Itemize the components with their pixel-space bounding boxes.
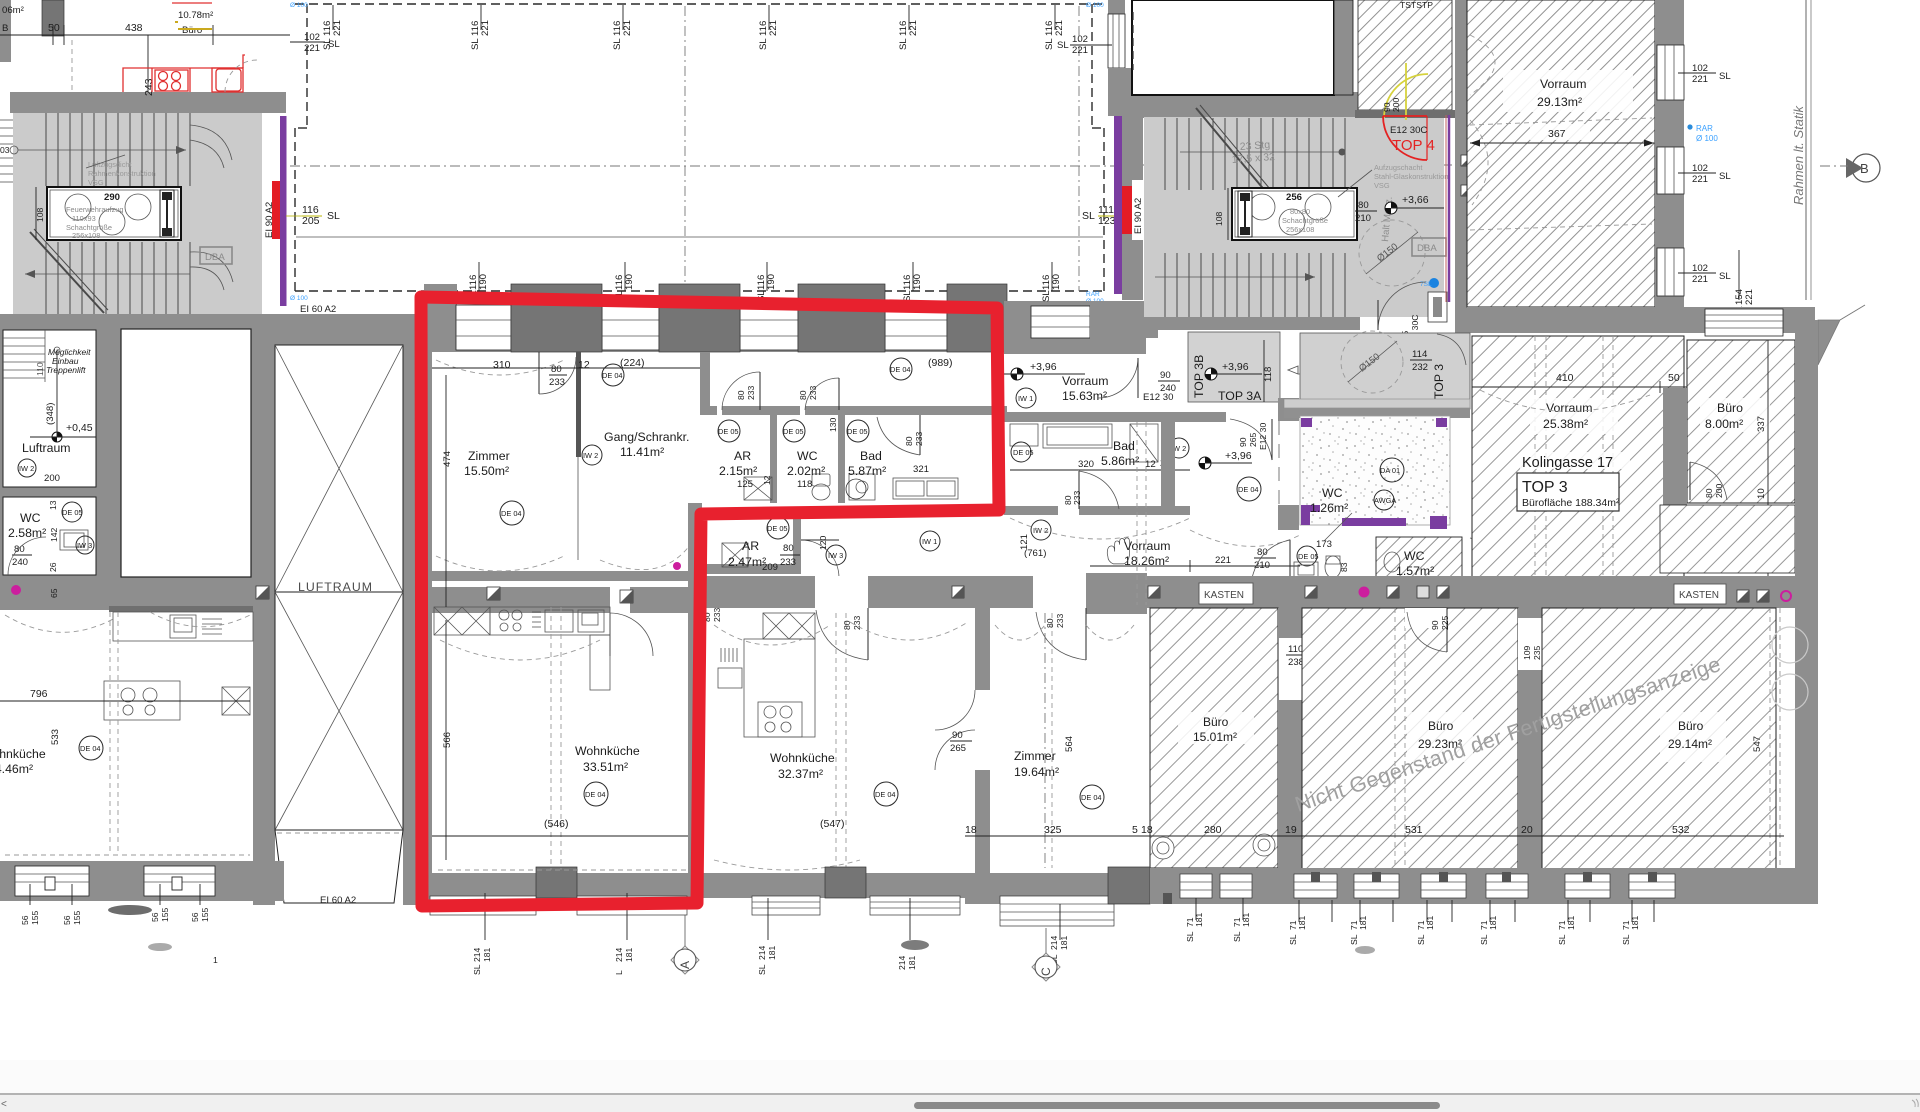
svg-text:102: 102 [1692,63,1708,74]
svg-text:214: 214 [614,947,624,962]
svg-text:SL: SL [757,964,767,975]
svg-text:321: 321 [913,464,929,475]
svg-text:KASTEN: KASTEN [1204,590,1244,601]
svg-text:+3,96: +3,96 [1030,361,1057,373]
svg-text:221: 221 [480,20,491,36]
svg-text:90: 90 [1160,370,1171,381]
svg-text:173: 173 [1316,539,1332,550]
svg-text:SL: SL [322,38,333,50]
svg-text:IW 2: IW 2 [19,464,34,473]
svg-text:110: 110 [35,362,45,376]
svg-text:367: 367 [1548,128,1566,140]
svg-text:233: 233 [712,607,722,622]
svg-text:+0,45: +0,45 [66,422,93,434]
svg-text:221: 221 [1692,174,1708,185]
svg-text:RAR: RAR [1086,291,1100,298]
svg-text:Aufzugschacht: Aufzugschacht [1374,163,1422,172]
svg-text:DE 04: DE 04 [80,744,101,753]
svg-text:221: 221 [1744,289,1755,305]
svg-text:210: 210 [1355,213,1371,224]
svg-text:SL: SL [758,38,769,50]
svg-text:TOP 3A: TOP 3A [1218,389,1262,403]
svg-text:12: 12 [578,359,590,371]
svg-text:33.51m²: 33.51m² [583,760,628,774]
svg-text:155: 155 [30,910,40,925]
svg-text:200: 200 [1714,483,1724,498]
svg-text:SL: SL [1057,40,1069,51]
svg-text:80: 80 [842,620,852,630]
svg-text:(224): (224) [620,357,645,369]
svg-text:Kolingasse 17: Kolingasse 17 [1522,455,1613,471]
svg-text:181: 181 [624,947,634,962]
svg-text:209: 209 [762,562,778,573]
svg-text:+3,96: +3,96 [1222,361,1249,373]
svg-text:Bad: Bad [860,449,882,463]
svg-text:Ø 100: Ø 100 [290,2,308,9]
svg-text:80: 80 [904,436,914,446]
svg-text:181: 181 [767,945,777,960]
svg-text:566: 566 [442,732,453,748]
svg-text:181: 181 [1488,915,1498,930]
svg-text:108: 108 [35,207,45,222]
svg-text:233: 233 [549,377,565,388]
svg-text:5.87m²: 5.87m² [848,464,886,478]
svg-text:11.41m²: 11.41m² [620,445,664,459]
svg-text:102: 102 [1072,34,1088,45]
svg-text:531: 531 [1405,824,1423,836]
svg-text:18: 18 [1141,824,1153,836]
svg-text:325: 325 [1044,824,1062,836]
svg-text:(547): (547) [820,818,845,830]
svg-text:221: 221 [908,20,919,36]
svg-text:Wohnküche: Wohnküche [0,747,46,761]
svg-text:Ø 100: Ø 100 [290,295,308,302]
svg-text:(989): (989) [928,357,953,369]
svg-text:TOP 3B: TOP 3B [1192,355,1206,398]
svg-text:80: 80 [798,390,808,400]
svg-text:Schachtgröße: Schachtgröße [1282,216,1328,225]
svg-text:DE 04: DE 04 [890,365,911,374]
svg-text:E12 30: E12 30 [1143,392,1173,403]
svg-text:IW 1: IW 1 [922,537,937,546]
svg-text:8.00m²: 8.00m² [1705,417,1743,431]
svg-text:280: 280 [1204,824,1222,836]
svg-text:83: 83 [1339,562,1349,572]
svg-text:118: 118 [797,479,812,490]
svg-text:SL: SL [1041,290,1052,302]
svg-text:221: 221 [304,43,320,54]
svg-text:233: 233 [1055,613,1065,628]
svg-text:190: 190 [766,274,777,290]
svg-text:DE 05: DE 05 [1298,552,1319,561]
svg-text:320: 320 [1078,459,1094,470]
svg-text:29.14m²: 29.14m² [1668,737,1712,751]
svg-text:190: 190 [912,274,923,290]
svg-text:SL: SL [612,38,623,50]
svg-text:233: 233 [914,431,924,446]
svg-text:108: 108 [1214,211,1224,226]
svg-text:190: 190 [478,274,489,290]
svg-text:13: 13 [48,500,58,510]
svg-text:80: 80 [551,364,562,375]
svg-text:Bad: Bad [1113,439,1135,453]
svg-text:(761): (761) [1024,548,1046,559]
svg-text:SL: SL [1082,210,1095,222]
svg-text:80: 80 [1704,488,1714,498]
svg-text:474: 474 [442,450,453,467]
svg-text:796: 796 [30,688,48,700]
svg-text:205: 205 [302,215,320,227]
svg-text:256x108: 256x108 [72,231,100,240]
svg-text:E12 30C: E12 30C [1390,125,1427,136]
svg-text:Stahl-Glaskonstruktion: Stahl-Glaskonstruktion [1374,172,1448,181]
svg-text:181: 181 [1630,915,1640,930]
svg-text:SL: SL [1719,271,1731,282]
svg-text:DE 04: DE 04 [1081,793,1102,802]
svg-text:80: 80 [783,543,794,554]
svg-text:SL: SL [1288,934,1298,945]
svg-text:225: 225 [1440,615,1450,630]
svg-text:KASTEN: KASTEN [1679,590,1719,601]
svg-text:265: 265 [950,743,966,754]
svg-text:DE 04: DE 04 [1238,485,1259,494]
svg-text:118: 118 [1263,367,1274,382]
svg-text:90: 90 [1430,620,1440,630]
svg-text:290: 290 [104,192,120,203]
svg-text:12: 12 [762,475,772,485]
svg-text:Rahmenkonstruktion: Rahmenkonstruktion [88,169,156,178]
svg-text:155: 155 [200,907,210,922]
svg-text:14.46m²: 14.46m² [0,762,33,776]
svg-text:A: A [678,961,692,969]
svg-text:109: 109 [1522,645,1532,660]
svg-text:DBA: DBA [1417,243,1437,254]
svg-text:221: 221 [1054,20,1065,36]
svg-text:80: 80 [1045,618,1055,628]
svg-text:SL: SL [1044,38,1055,50]
svg-text:114: 114 [1412,349,1428,360]
svg-text:142: 142 [49,527,59,542]
svg-text:110x93: 110x93 [72,214,96,223]
svg-text:IW 1: IW 1 [1018,394,1033,403]
svg-text:(546): (546) [544,818,569,830]
svg-text:256x108: 256x108 [1286,225,1314,234]
svg-text:155: 155 [72,910,82,925]
svg-text:DA 01: DA 01 [1380,466,1400,475]
svg-text:AR: AR [734,449,751,463]
svg-text:DE 05: DE 05 [847,427,868,436]
svg-text:DE 05: DE 05 [783,427,804,436]
svg-text:19: 19 [1285,824,1297,836]
svg-text:181: 181 [1194,912,1204,927]
svg-text:C: C [1039,967,1053,976]
svg-text:Vorraum: Vorraum [1124,539,1170,553]
svg-text:2.47m²: 2.47m² [728,555,766,569]
svg-text:DE 05: DE 05 [62,508,83,517]
svg-text:123: 123 [1098,215,1116,227]
svg-text:06m²: 06m² [2,5,25,16]
svg-text:DE 04: DE 04 [501,509,522,518]
svg-text:10: 10 [1756,488,1767,499]
svg-text:56: 56 [150,912,160,922]
svg-text:221: 221 [1692,74,1708,85]
svg-text:221: 221 [768,20,779,36]
svg-text:547: 547 [1752,736,1763,752]
svg-text:DE 04: DE 04 [585,790,606,799]
svg-text:Feuerwehraufzug: Feuerwehraufzug [66,205,124,214]
svg-text:Büro: Büro [1717,401,1743,415]
svg-text:2.15m²: 2.15m² [719,464,757,478]
svg-text:80: 80 [1358,200,1369,211]
svg-text:214: 214 [472,947,482,962]
svg-text:102: 102 [1692,263,1708,274]
svg-text:29.13m²: 29.13m² [1537,95,1582,109]
svg-text:190: 190 [624,274,635,290]
svg-text:Ø 100: Ø 100 [1696,134,1718,143]
svg-text:181: 181 [1425,915,1435,930]
svg-text:181: 181 [1358,915,1368,930]
svg-text:32.37m²: 32.37m² [778,767,823,781]
svg-text:5: 5 [1132,824,1138,836]
svg-text:DBA: DBA [205,252,225,263]
svg-text:SL: SL [1621,934,1631,945]
svg-text:221: 221 [1215,555,1231,566]
svg-text:56: 56 [20,915,30,925]
svg-text:SL: SL [1719,71,1731,82]
svg-text:337: 337 [1756,416,1767,432]
svg-text:Bürofläche 188.34m²: Bürofläche 188.34m² [1522,497,1620,509]
svg-text:SL: SL [1557,934,1567,945]
svg-text:125: 125 [737,479,753,490]
svg-text:Büro: Büro [182,25,202,36]
svg-text:214: 214 [1049,935,1059,950]
svg-text:200: 200 [44,473,60,484]
svg-text:240: 240 [12,557,28,568]
svg-text:221: 221 [1072,45,1088,56]
svg-text:564: 564 [1064,735,1075,752]
svg-text:80x80: 80x80 [1290,207,1310,216]
svg-text:233: 233 [746,385,756,400]
svg-text:2.58m²: 2.58m² [8,526,46,540]
svg-text:Vorraum: Vorraum [1062,374,1108,388]
svg-text:Wohnküche: Wohnküche [770,751,835,765]
svg-text:DE 04: DE 04 [602,371,623,380]
svg-text:Treppenlift: Treppenlift [46,365,86,375]
svg-text:1.26m²: 1.26m² [1310,501,1348,515]
svg-text:221: 221 [622,20,633,36]
svg-text:WC: WC [20,511,41,525]
svg-text:110: 110 [1288,644,1303,655]
svg-text:25.38m²: 25.38m² [1543,417,1588,431]
svg-text:20: 20 [1521,824,1533,836]
svg-text:214: 214 [897,955,907,970]
svg-text:Büro: Büro [1678,719,1704,733]
svg-text:IW 2: IW 2 [1033,526,1048,535]
svg-text:533: 533 [50,729,61,745]
svg-text:VSG: VSG [88,178,104,187]
svg-text:256: 256 [1286,192,1302,203]
svg-text:15.63m²: 15.63m² [1062,389,1107,403]
svg-text:SL: SL [1349,934,1359,945]
svg-text:(348): (348) [45,403,56,425]
svg-text:181: 181 [1566,915,1576,930]
svg-text:181: 181 [1241,912,1251,927]
svg-text:102: 102 [1692,163,1708,174]
svg-text:181: 181 [1297,915,1307,930]
svg-text:5.86m²: 5.86m² [1101,454,1139,468]
svg-text:SL: SL [1719,171,1731,182]
svg-text:181: 181 [907,955,917,970]
svg-text:Luftraum: Luftraum [22,441,71,455]
svg-text:L: L [614,970,624,975]
svg-text:SL: SL [898,38,909,50]
svg-text:TOP 3: TOP 3 [1432,364,1446,399]
svg-text:EI 60 A2: EI 60 A2 [300,304,336,315]
svg-text:Zimmer: Zimmer [468,449,510,463]
svg-text:DE 05: DE 05 [767,524,788,533]
svg-text:532: 532 [1672,824,1690,836]
svg-text:TOP 3: TOP 3 [1522,479,1568,496]
svg-text:IW 2: IW 2 [583,451,598,460]
svg-text:2.02m²: 2.02m² [787,464,825,478]
svg-text:232: 232 [1412,362,1428,373]
svg-text:SL: SL [1416,934,1426,945]
svg-text:AR: AR [742,539,759,553]
svg-text:15.01m²: 15.01m² [1193,730,1237,744]
svg-text:Ø 100: Ø 100 [1086,2,1104,9]
svg-text:265: 265 [1248,432,1258,447]
svg-text:SL: SL [472,964,482,975]
svg-text:90: 90 [1238,437,1248,447]
svg-text:Wohnküche: Wohnküche [575,744,640,758]
svg-text:IW 3: IW 3 [828,551,843,560]
svg-text:181: 181 [1059,935,1069,950]
svg-text:Büro: Büro [1428,719,1454,733]
svg-text:130: 130 [828,417,838,432]
svg-text:56: 56 [62,915,72,925]
svg-text:+3,66: +3,66 [1402,194,1429,206]
svg-text:90: 90 [952,730,963,741]
svg-text:WC: WC [1322,486,1343,500]
svg-text:233: 233 [1072,490,1082,505]
svg-text:LUFTRAUM: LUFTRAUM [298,580,373,594]
svg-text:E12 30: E12 30 [1258,423,1268,450]
svg-text:B: B [2,23,8,34]
svg-text:10.78m²: 10.78m² [178,10,214,21]
svg-text:SL: SL [470,38,481,50]
svg-text:181: 181 [482,947,492,962]
svg-text:214: 214 [757,945,767,960]
svg-text:80: 80 [14,544,25,555]
svg-text:Vorraum: Vorraum [1540,77,1586,91]
svg-text:235: 235 [1532,645,1542,660]
svg-text:50: 50 [48,22,60,34]
svg-text:Gang/Schrankr.: Gang/Schrankr. [604,430,689,444]
svg-text:SL: SL [1185,931,1195,942]
svg-text:200: 200 [1391,97,1401,112]
svg-text:26: 26 [48,562,58,572]
svg-text:Rahmen lt. Statik: Rahmen lt. Statik [1791,105,1806,205]
svg-text:TOP 4: TOP 4 [1392,137,1435,154]
svg-text:IW 3: IW 3 [77,541,92,550]
svg-text:102: 102 [304,32,320,43]
svg-text:233: 233 [780,557,796,568]
svg-text:DE 05: DE 05 [718,427,739,436]
svg-text:DE 05: DE 05 [1013,448,1034,457]
svg-text:310: 310 [493,359,511,371]
svg-text:VSG: VSG [1374,181,1390,190]
svg-text:1.57m²: 1.57m² [1396,564,1434,578]
svg-text:DE 04: DE 04 [875,790,896,799]
svg-text:410: 410 [1556,372,1574,384]
svg-text:155: 155 [160,907,170,922]
svg-text:190: 190 [1051,274,1062,290]
svg-text:Vorraum: Vorraum [1546,401,1592,415]
svg-text:80: 80 [736,390,746,400]
svg-text:1: 1 [213,955,218,965]
svg-text:WC: WC [797,449,818,463]
svg-text:+3,96: +3,96 [1225,450,1252,462]
svg-text:Büro: Büro [1203,715,1229,729]
svg-text:438: 438 [125,22,143,34]
svg-text:EI 90 A2: EI 90 A2 [1133,198,1144,234]
svg-text:TSTSTP: TSTSTP [1400,0,1433,10]
svg-text:<: < [1,1099,7,1110]
svg-text:56: 56 [190,912,200,922]
svg-text:12: 12 [1145,459,1156,470]
svg-text:65: 65 [49,588,59,598]
svg-text:Zimmer: Zimmer [1014,749,1056,763]
svg-text:233: 233 [808,385,818,400]
svg-text:120: 120 [818,535,828,550]
svg-text:SL: SL [327,210,340,222]
svg-text:18: 18 [965,824,977,836]
svg-text:03: 03 [0,145,10,155]
svg-text:EI 60 A2: EI 60 A2 [320,895,356,906]
svg-text:243: 243 [143,78,155,96]
svg-text:221: 221 [1692,274,1708,285]
svg-text:Luftzugsdicht: Luftzugsdicht [88,160,132,169]
svg-text:221: 221 [332,20,343,36]
svg-text:RAR: RAR [1696,124,1713,133]
svg-text:SL: SL [1232,931,1242,942]
svg-text:50: 50 [1668,372,1680,384]
svg-text:AWGA: AWGA [1374,496,1396,505]
svg-text:15.50m²: 15.50m² [464,464,509,478]
svg-text:SL: SL [1479,934,1489,945]
svg-text:WC: WC [1404,549,1425,563]
